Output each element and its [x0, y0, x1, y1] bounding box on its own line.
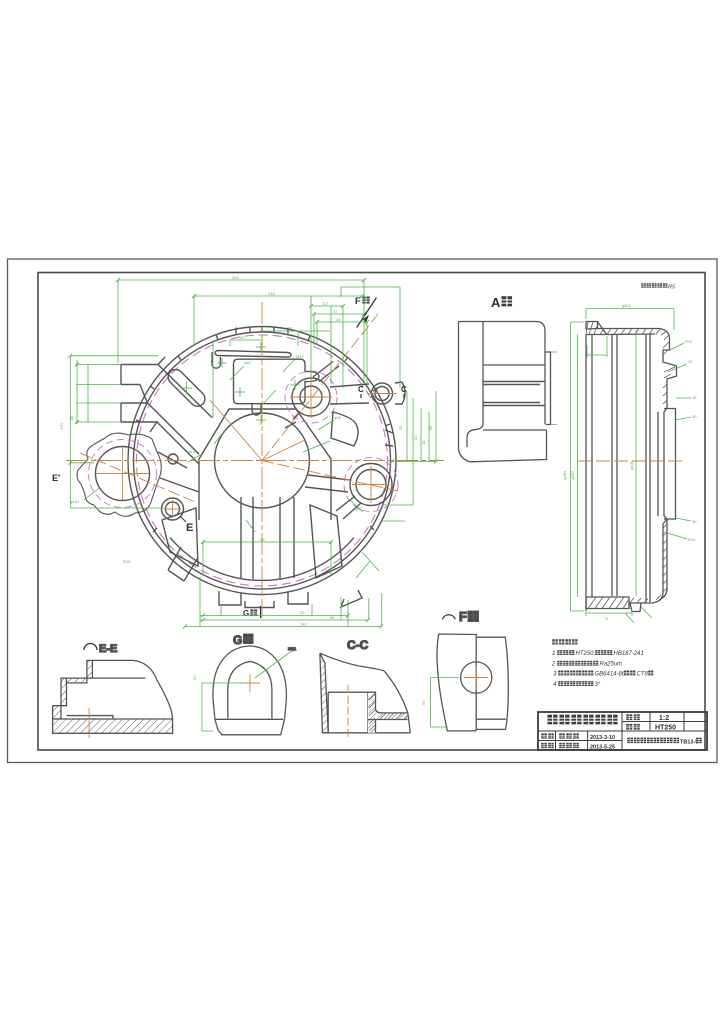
svg-text:E: E — [186, 522, 193, 534]
svg-text:Ra25um: Ra25um — [600, 662, 623, 668]
svg-text:F: F — [459, 609, 467, 624]
svg-text:φ381: φ381 — [562, 470, 567, 480]
svg-text:117: 117 — [322, 301, 329, 306]
svg-text:30: 30 — [240, 335, 245, 340]
svg-text:CT8: CT8 — [637, 671, 649, 677]
svg-text:C: C — [401, 385, 407, 394]
svg-text:HT250,: HT250, — [576, 651, 596, 657]
svg-text:GB6414-86: GB6414-86 — [595, 671, 626, 677]
svg-text:50: 50 — [421, 700, 426, 705]
svg-text:1: 1 — [552, 651, 555, 657]
svg-text:25: 25 — [398, 425, 403, 430]
svg-text:30: 30 — [413, 435, 418, 440]
svg-text:25: 25 — [688, 359, 693, 364]
svg-text:G: G — [233, 633, 242, 647]
svg-text:A: A — [491, 295, 501, 310]
svg-text:1:2: 1:2 — [659, 715, 669, 722]
svg-text:18: 18 — [421, 440, 426, 445]
svg-text:φ511: φ511 — [622, 303, 632, 308]
svg-text:47: 47 — [333, 309, 338, 314]
svg-text:25: 25 — [288, 326, 293, 331]
svg-text:52: 52 — [192, 675, 197, 680]
svg-text:M12: M12 — [296, 354, 305, 359]
svg-text:3°: 3° — [595, 682, 601, 688]
svg-text:246: 246 — [268, 291, 275, 296]
svg-text:M12: M12 — [288, 646, 297, 651]
svg-text:56: 56 — [428, 425, 433, 430]
svg-text:170: 170 — [59, 423, 64, 430]
svg-text:40: 40 — [260, 537, 265, 542]
svg-text:φ52: φ52 — [355, 506, 363, 511]
svg-text:2: 2 — [551, 662, 556, 668]
svg-text:30: 30 — [692, 414, 697, 419]
svg-text:140: 140 — [300, 622, 307, 627]
svg-text:74: 74 — [604, 616, 609, 621]
svg-text:HT250: HT250 — [655, 725, 676, 732]
svg-text:2013-3-10: 2013-3-10 — [590, 735, 615, 741]
svg-text:φ102: φ102 — [70, 499, 80, 504]
svg-text:HB187-241: HB187-241 — [614, 651, 644, 657]
svg-text:25: 25 — [300, 610, 305, 615]
svg-text:C-C: C-C — [347, 638, 369, 652]
svg-text:φ62: φ62 — [244, 360, 252, 365]
svg-text:300: 300 — [232, 275, 239, 280]
svg-text:φ100: φ100 — [629, 460, 634, 470]
svg-text:E′: E′ — [52, 473, 60, 483]
svg-text:45: 45 — [336, 317, 341, 322]
svg-text:30: 30 — [692, 519, 697, 524]
svg-text:φ95: φ95 — [334, 415, 342, 420]
svg-text:R15: R15 — [688, 537, 696, 542]
svg-text:R5: R5 — [668, 284, 676, 290]
svg-text:60: 60 — [330, 615, 335, 620]
svg-text:R10: R10 — [685, 339, 693, 344]
svg-text:G: G — [243, 609, 249, 618]
svg-text:E-E: E-E — [99, 643, 117, 655]
svg-text:R15: R15 — [123, 559, 131, 564]
svg-text:C: C — [358, 385, 364, 394]
svg-text:φ352: φ352 — [570, 470, 575, 480]
svg-text:2013-5-25: 2013-5-25 — [590, 745, 615, 751]
svg-text:TB13-5: TB13-5 — [680, 739, 698, 745]
svg-text:15: 15 — [692, 395, 697, 400]
svg-text:88: 88 — [69, 415, 74, 420]
svg-text:φ122: φ122 — [188, 449, 198, 454]
